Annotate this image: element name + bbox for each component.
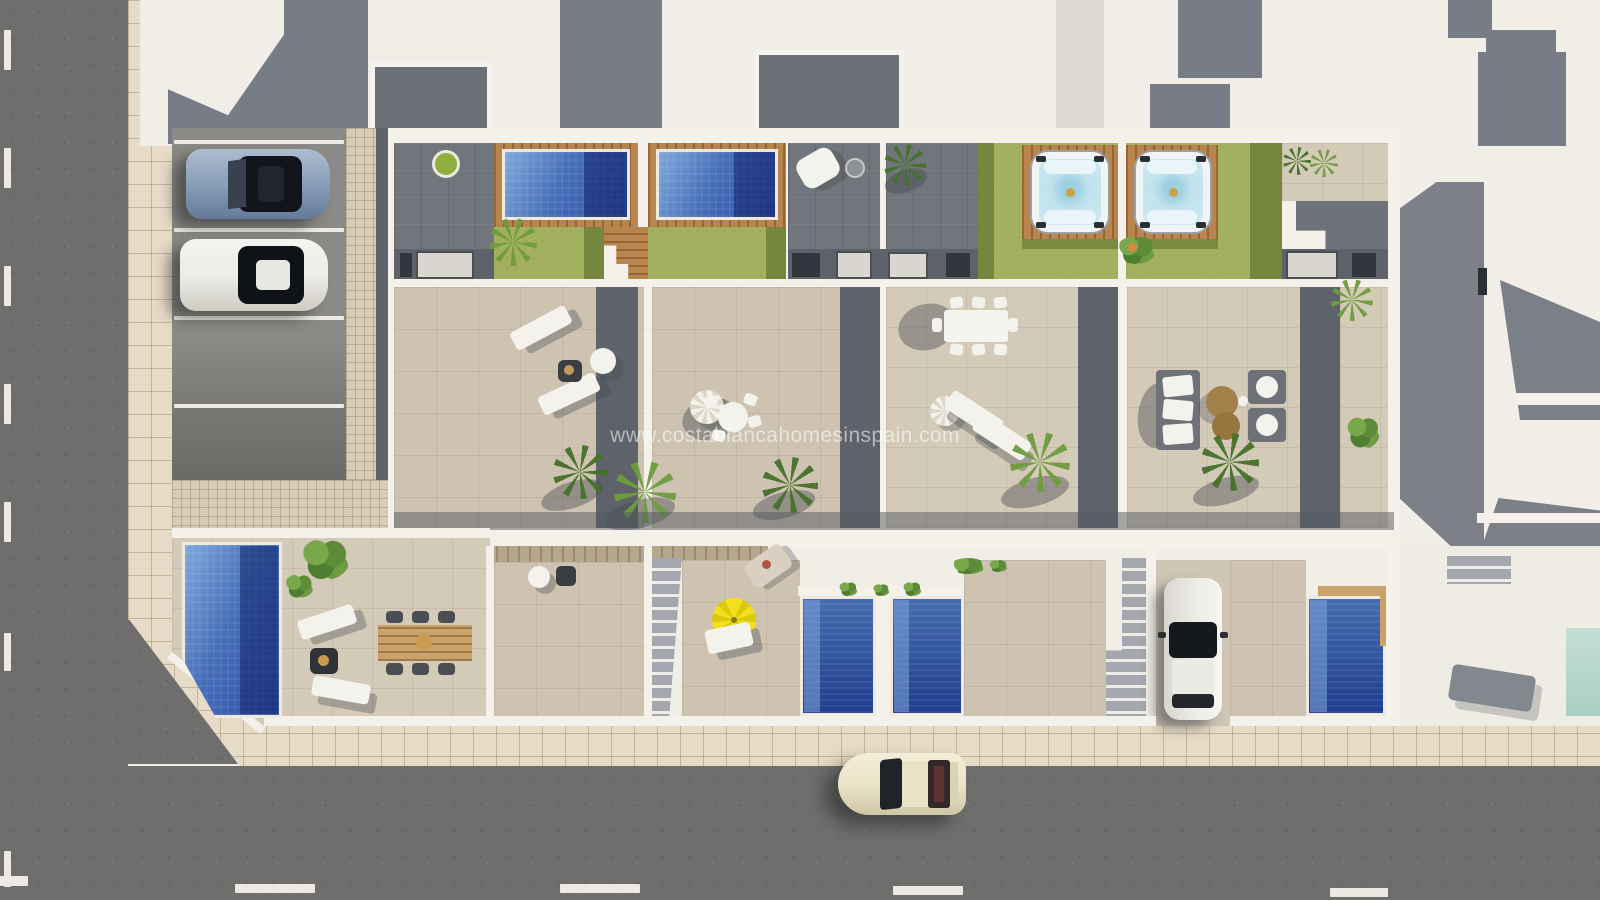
pool-step-light [1310,600,1327,712]
parking-line [174,140,344,144]
jacuzzi-seat [1147,160,1197,174]
vine-plant [950,558,986,574]
lane-marking [235,884,315,893]
car-roof [258,166,284,202]
car-rear-window [1172,694,1214,708]
cushion-red [762,560,771,569]
dining-chair [994,296,1008,308]
garden-wall [172,528,490,538]
rooflight [1478,268,1487,295]
patio-wall [1146,546,1156,726]
palm-tree [762,457,818,513]
neighbour-wall [1516,393,1600,405]
party-wall [1118,287,1127,528]
side-table [1238,396,1248,406]
flower [1128,243,1137,252]
front-wall [1230,716,1400,726]
exterior-stairs [652,558,682,726]
lane-marking [4,633,11,671]
bistro-seat [556,566,576,586]
roof-joint [1056,0,1104,143]
vine-plant [902,582,922,596]
pool-step-light [894,600,909,712]
villa3-patio [964,560,1106,726]
bbq-unit [836,251,872,279]
palm-tree [553,445,607,499]
villa4-patio [1230,560,1306,726]
car-blue-parked [184,146,332,222]
dining-chair [994,344,1008,356]
kitchen-door [792,253,820,277]
neighbour-driveway [1396,182,1484,546]
palm-tree [489,218,537,266]
car-cream-street [836,750,968,818]
bbq-unit [888,252,928,279]
neighbour-roof-terrace [168,0,368,144]
car-windshield [880,758,902,810]
car-roof [1172,660,1214,694]
street-bottom [0,766,1600,900]
lane-marking [4,266,11,306]
car-mirror [1158,632,1166,638]
jacuzzi-2 [1134,150,1212,234]
armchair [1248,370,1286,404]
lane-marking [4,502,11,542]
kitchen-door [946,253,970,277]
end-wall [1386,546,1400,726]
wall-shadow [840,287,880,528]
armchair-cushion [1256,414,1278,436]
vine-plant [872,584,890,596]
patio-wall [644,546,652,726]
jacuzzi-pad [1094,156,1104,162]
kitchen-door [400,253,412,277]
dining-chair [1008,318,1018,332]
vine-plant [988,560,1008,572]
lane-marking [560,884,640,893]
sofa-cushion [1162,423,1193,445]
pool-step-light [804,600,820,712]
dining-chair [949,296,963,309]
parking-line [174,228,344,232]
round-table [590,348,616,374]
lane-marking [4,30,11,70]
vine-plant [838,582,858,596]
wall-line [388,279,1400,287]
lawn-shadow [1250,143,1282,281]
sofa-cushion [1162,399,1194,422]
car-rear-deck [934,766,944,802]
jacuzzi-pad [1196,222,1206,228]
jacuzzi-pad [1196,156,1206,162]
roof-table-plant [432,150,460,178]
palm-tree [1331,279,1373,321]
villa1-patio [494,562,644,726]
dining-table [944,310,1008,342]
exterior-stairs [1106,558,1146,726]
jacuzzi-seat [1147,210,1197,224]
garden-chair [412,663,429,675]
car-roof [902,761,928,807]
tray-detail [564,365,574,375]
dining-chair [971,343,985,355]
fire-pit-flame [318,655,329,666]
garden-chair [386,611,403,623]
jacuzzi-pad [1140,222,1150,228]
car-trim [950,762,958,806]
armchair [1248,408,1286,442]
car-white-parked [178,236,330,314]
terrace-villa4-side [1340,287,1388,528]
outdoor-sofa [1156,370,1200,450]
bbq-unit [1286,251,1338,279]
palm-tree [1310,149,1338,177]
parking-line [174,404,344,408]
watermark: www.costablancahomesinspain.com [460,424,1110,448]
car-roof [256,260,290,290]
front-wall [486,716,1156,726]
street-left [0,0,128,900]
palm-tree [1201,433,1259,491]
cobble-band [172,480,390,528]
roof-strip [560,0,662,146]
jacuzzi-jet [1066,188,1075,197]
cobble-path [346,128,376,480]
wall-shadow [1078,287,1118,528]
parking-line [174,316,344,320]
roof-strip [1486,30,1556,54]
jacuzzi-pad [1094,222,1104,228]
neighbour-wall [1477,513,1600,523]
dining-chair [932,318,942,332]
roof-side-table [845,158,865,178]
potted-plant [300,538,350,580]
roof-strip [1178,0,1262,78]
bistro-table [528,566,550,588]
lane-marking [4,384,11,424]
lane-marking [0,876,28,886]
lawn-shadow [978,143,994,281]
plant [284,574,314,598]
jacuzzi-seat [1044,210,1096,224]
palm-tree [1283,147,1311,175]
neighbour-stairs [1447,556,1511,584]
jacuzzi-pad [1036,222,1046,228]
jacuzzi-pad [1036,156,1046,162]
lane-marking [1330,888,1388,897]
pool-divider-wall [876,586,890,716]
patio-wall [486,546,494,726]
lawn-shadow [584,227,604,281]
terrace-edge-shadow [394,512,1394,530]
garden-chair [412,611,429,623]
lane-marking [893,886,963,895]
garden-chair [438,663,455,675]
car-white-driveway [1162,576,1224,722]
jacuzzi-1 [1030,150,1110,234]
pool-deep-end [584,152,627,217]
dining-chair [949,343,963,356]
armchair-cushion [1256,376,1278,398]
car-windshield [1169,622,1217,658]
jacuzzi-jet [1169,188,1178,197]
lane-marking [4,148,11,188]
angled-roof [168,0,368,144]
bush [1346,415,1380,449]
garden-wall [264,716,486,726]
kitchen-door [1352,253,1376,277]
jacuzzi-pad [1140,156,1150,162]
car-mirror [1220,632,1228,638]
palm-tree [884,144,926,186]
table-centerpiece [416,634,432,650]
sofa-cushion [1162,374,1194,397]
car-windshield [228,159,246,210]
wall-shadow [1300,287,1340,528]
pool-deep-end [240,546,278,714]
dining-chair [971,296,985,308]
aerial-render: www.costablancahomesinspain.com [0,0,1600,900]
front-wall [388,530,1400,546]
garden-chair [386,663,403,675]
garden-chair [438,611,455,623]
jacuzzi-seat [1044,160,1096,174]
neighbour-pool-edge [1566,628,1600,716]
lawn-shadow [766,227,786,281]
bbq-unit [416,251,474,279]
pool-deep-end [734,152,775,217]
